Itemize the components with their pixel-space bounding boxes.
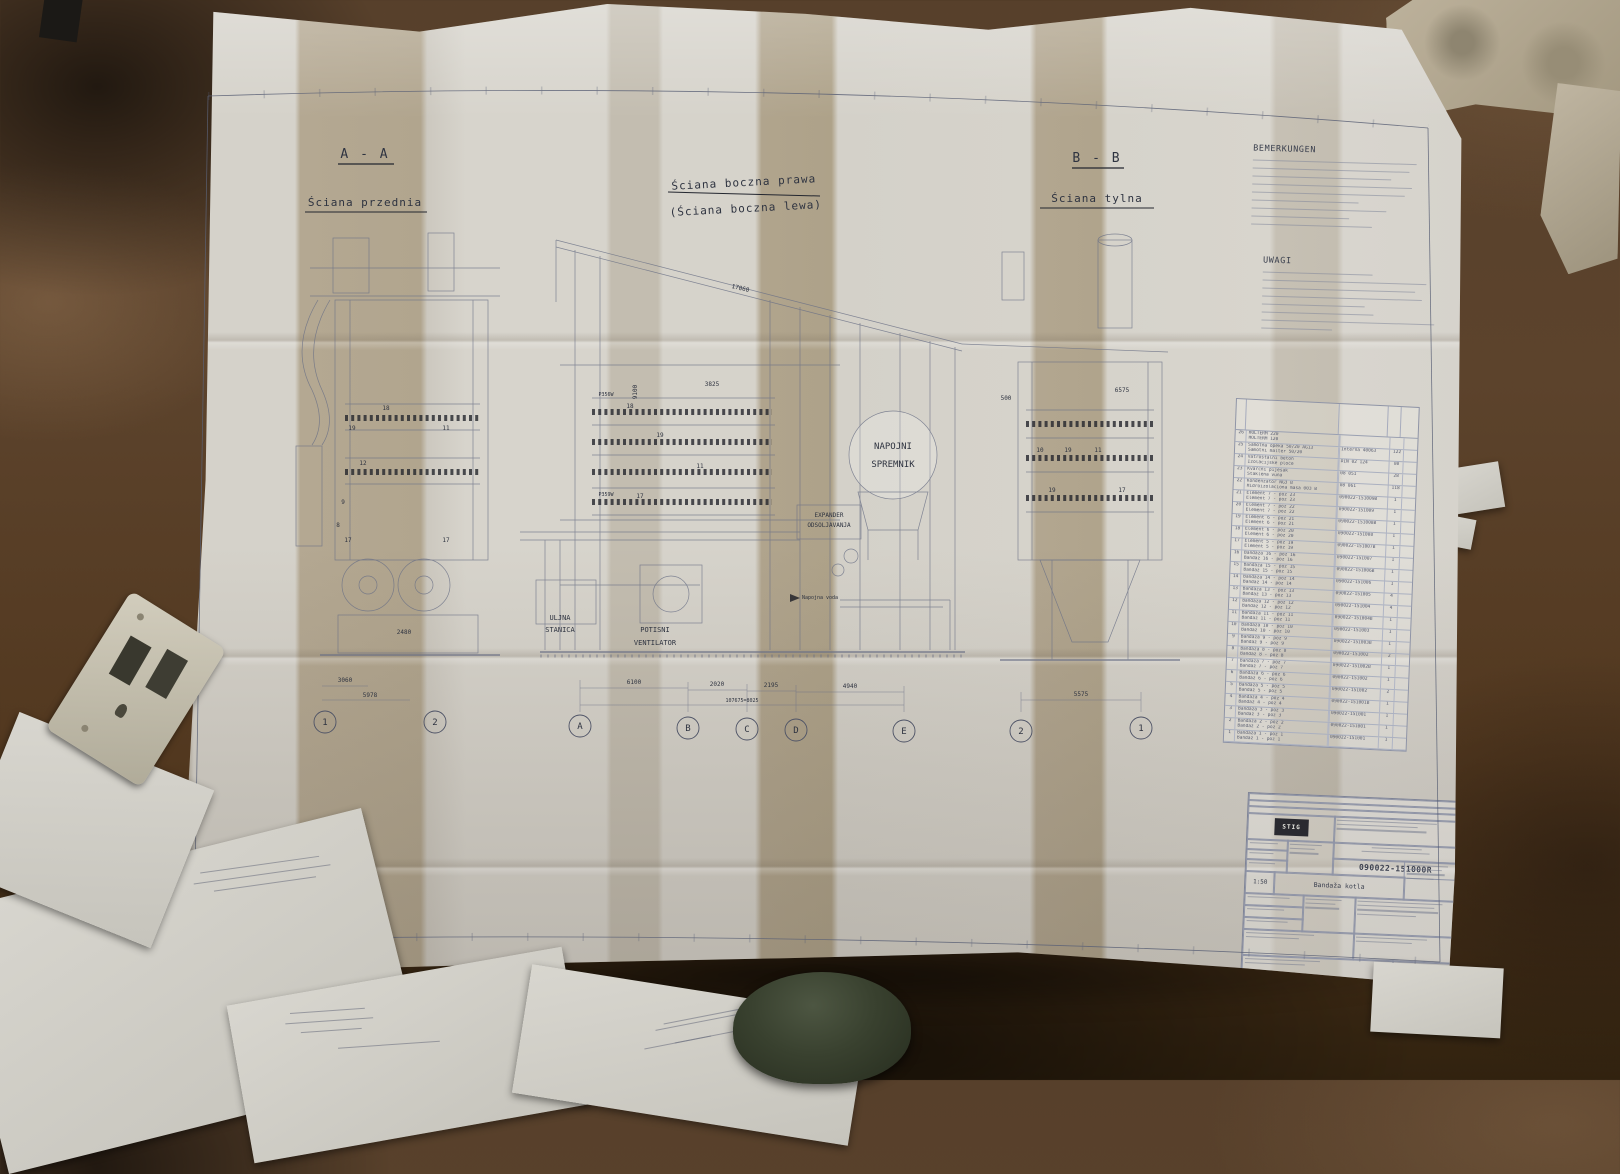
axis-bubble-a: A: [577, 722, 583, 732]
dim-left-a: 3060: [338, 677, 353, 684]
callout-18c: 18: [626, 403, 634, 410]
switch-slot: [145, 649, 188, 699]
callout-17: 17: [344, 537, 352, 544]
axis-bubble-1r: 1: [1138, 724, 1143, 734]
screw: [80, 724, 90, 734]
paper-bottom-right-sliver: [1370, 962, 1503, 1039]
title-view-front: A - A: [340, 147, 389, 162]
callout-11: 11: [442, 425, 450, 432]
grid-bubbles: [314, 711, 1152, 742]
label-feedwater: Napojna voda: [802, 595, 838, 601]
subtitle-view-back: Ściana tylna: [1051, 192, 1142, 205]
title-view-back: B - B: [1072, 151, 1121, 166]
label-feed-tank-1: NAPOJNI: [874, 442, 912, 452]
dim-band-right: 6575: [1115, 387, 1130, 394]
label-oil-station-1: ULJNA: [549, 614, 571, 622]
callout-9: 9: [341, 499, 345, 506]
callout-11c: 11: [696, 463, 704, 470]
axis-bubble-b: B: [685, 724, 690, 734]
callout-10r: 10: [1036, 447, 1044, 454]
dim-cd: 2195: [764, 682, 779, 689]
view-side-linework: [520, 240, 1141, 712]
callout-12: 12: [359, 460, 367, 467]
title-view-side: Ściana boczna prawa: [671, 172, 816, 193]
dim-base: 2480: [397, 629, 412, 636]
dim-right: 5575: [1074, 691, 1089, 698]
subtitle-view-front: Ściana przednia: [308, 196, 422, 209]
axis-bubble-2r: 2: [1018, 727, 1023, 737]
axis-bubble-e: E: [901, 727, 906, 737]
dim-height: 9100: [632, 384, 639, 399]
callout-17r: 17: [1118, 487, 1126, 494]
callout-19r2: 19: [1048, 487, 1056, 494]
dim-mid: 3825: [705, 381, 720, 388]
axis-bubble-2: 2: [432, 718, 437, 728]
label-expander-2: ODSOLJAVANJA: [807, 522, 851, 529]
label-expander-1: EXPANDER: [815, 512, 844, 519]
dim-small: 500: [1001, 395, 1012, 402]
axis-bubble-1: 1: [322, 718, 327, 728]
subtitle-view-side: (Ściana boczna lewa): [669, 198, 822, 219]
keyhole: [113, 702, 129, 719]
label-fan-2: VENTILATOR: [634, 639, 677, 647]
label-oil-station-2: STANICA: [545, 626, 575, 634]
photo-of-blueprint-scene: { "sheet": { "views": { "front": {"title…: [0, 0, 1620, 1080]
callout-18: 18: [382, 405, 390, 412]
callout-17b: 17: [442, 537, 450, 544]
label-fan-1: POTISNI: [640, 626, 670, 634]
callout-11r: 11: [1094, 447, 1102, 454]
green-cap: [733, 972, 911, 1084]
callout-19r: 19: [1064, 447, 1072, 454]
callout-19c: 19: [656, 432, 664, 439]
axis-bubble-c: C: [744, 725, 749, 735]
screw: [136, 612, 146, 622]
callout-8: 8: [336, 522, 340, 529]
dim-de: 4940: [843, 683, 858, 690]
label-feed-tank-2: SPREMNIK: [871, 460, 915, 470]
callout-pump2: P359W: [598, 492, 614, 498]
axis-bubble-d: D: [793, 726, 798, 736]
callout-19: 19: [348, 425, 356, 432]
dim-left-b: 5978: [363, 692, 378, 699]
switch-slot: [109, 636, 152, 686]
callout-pump1: P356W: [598, 392, 614, 398]
dim-bc: 2020: [710, 681, 725, 688]
callout-17c: 17: [636, 493, 644, 500]
dim-ab: 6100: [627, 679, 642, 686]
dim-total: 107675=8025: [725, 698, 758, 704]
